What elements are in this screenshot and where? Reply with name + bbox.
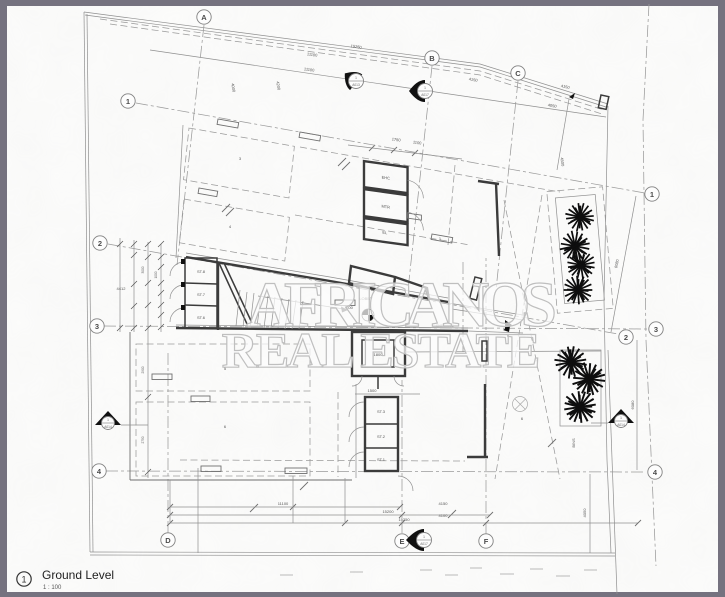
svg-text:1: 1 xyxy=(620,416,622,420)
svg-text:6080: 6080 xyxy=(630,400,635,410)
svg-text:4150: 4150 xyxy=(439,501,449,506)
svg-text:B: B xyxy=(429,54,435,63)
svg-text:3: 3 xyxy=(95,322,99,331)
svg-text:3000: 3000 xyxy=(141,266,145,273)
svg-text:ST.7: ST.7 xyxy=(197,292,206,297)
svg-text:A017: A017 xyxy=(420,542,428,546)
svg-text:ST.8: ST.8 xyxy=(197,269,206,274)
svg-text:11100: 11100 xyxy=(278,501,289,506)
svg-text:2900: 2900 xyxy=(141,366,145,373)
svg-text:BINS: BINS xyxy=(571,438,576,448)
svg-text:ST.2: ST.2 xyxy=(377,434,386,439)
svg-text:4412: 4412 xyxy=(117,286,127,291)
svg-text:1 : 100: 1 : 100 xyxy=(43,585,62,591)
svg-text:E: E xyxy=(399,537,404,546)
svg-text:15250: 15250 xyxy=(398,517,410,522)
svg-text:A014: A014 xyxy=(104,425,112,429)
svg-text:2750: 2750 xyxy=(141,436,145,443)
svg-text:1: 1 xyxy=(424,86,426,90)
svg-text:2: 2 xyxy=(98,239,102,248)
svg-text:15200: 15200 xyxy=(382,509,394,514)
svg-text:1: 1 xyxy=(126,97,130,106)
svg-text:1000: 1000 xyxy=(154,271,158,278)
svg-text:1: 1 xyxy=(423,535,425,539)
svg-text:F: F xyxy=(484,537,489,546)
svg-text:A017: A017 xyxy=(421,93,429,97)
svg-text:2: 2 xyxy=(624,333,628,342)
svg-text:1: 1 xyxy=(107,418,109,422)
svg-text:C: C xyxy=(515,69,521,78)
svg-text:4050: 4050 xyxy=(582,508,587,518)
svg-text:ST.1: ST.1 xyxy=(377,457,386,462)
svg-text:1: 1 xyxy=(355,76,357,80)
svg-text:A014: A014 xyxy=(617,423,625,427)
svg-text:3: 3 xyxy=(654,325,658,334)
svg-text:1: 1 xyxy=(650,190,654,199)
svg-text:1: 1 xyxy=(21,575,26,585)
svg-text:A: A xyxy=(201,13,207,22)
svg-text:REAL ESTATE: REAL ESTATE xyxy=(222,322,539,378)
svg-text:4100: 4100 xyxy=(439,513,449,518)
svg-text:ST.6: ST.6 xyxy=(197,315,206,320)
svg-text:Ground Level: Ground Level xyxy=(42,568,114,582)
svg-text:A013: A013 xyxy=(352,83,360,87)
svg-text:D: D xyxy=(165,536,171,545)
svg-text:ST.3: ST.3 xyxy=(377,409,386,414)
svg-text:1500: 1500 xyxy=(368,388,378,393)
svg-text:EL: EL xyxy=(382,230,388,236)
